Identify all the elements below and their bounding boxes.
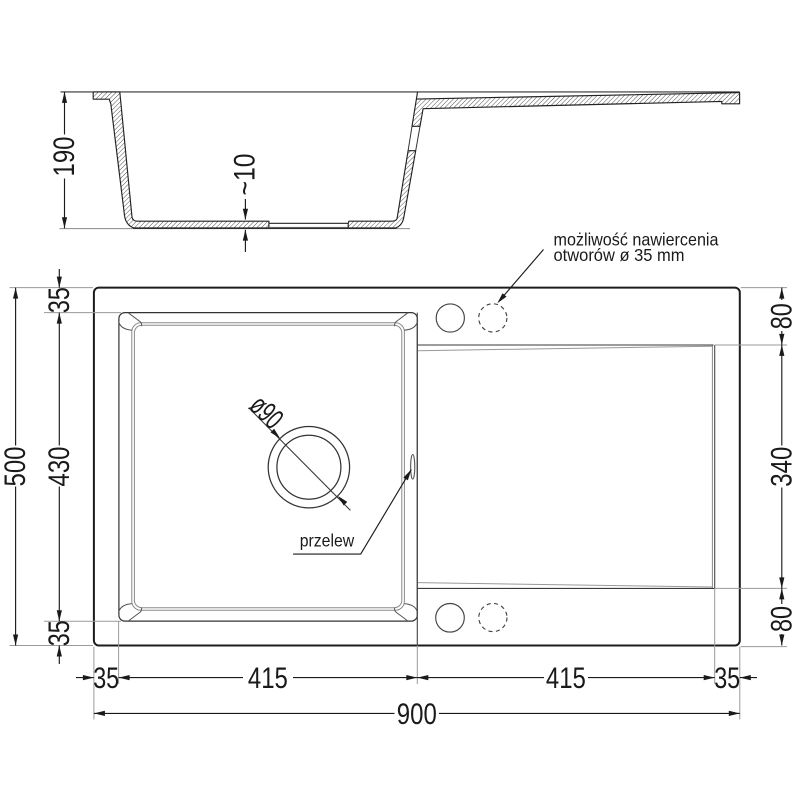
svg-text:80: 80: [765, 303, 798, 329]
svg-text:otworów ø 35 mm: otworów ø 35 mm: [554, 245, 685, 265]
svg-text:80: 80: [765, 606, 798, 632]
svg-text:340: 340: [765, 447, 798, 487]
svg-text:35: 35: [43, 287, 76, 313]
svg-text:~10: ~10: [229, 154, 262, 196]
svg-text:415: 415: [546, 662, 586, 695]
svg-text:35: 35: [43, 620, 76, 646]
svg-text:430: 430: [43, 447, 76, 487]
svg-text:415: 415: [248, 662, 288, 695]
svg-text:190: 190: [48, 137, 81, 177]
svg-text:35: 35: [714, 662, 740, 695]
svg-text:500: 500: [0, 447, 32, 487]
svg-text:35: 35: [93, 662, 119, 695]
svg-text:900: 900: [397, 698, 437, 731]
svg-text:przelew: przelew: [300, 531, 355, 551]
